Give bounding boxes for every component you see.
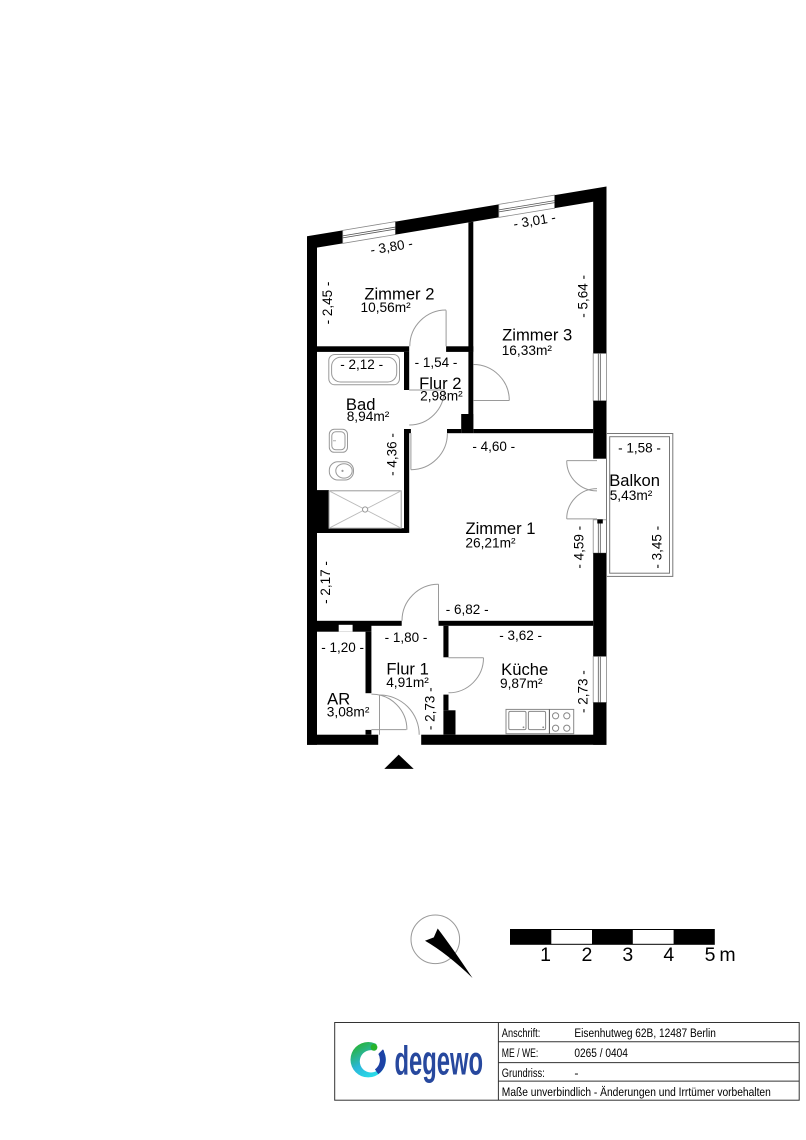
svg-text:- 1,20 -: - 1,20 -: [321, 640, 364, 655]
svg-text:- 4,60 -: - 4,60 -: [472, 439, 515, 454]
svg-text:- 3,45 -: - 3,45 -: [650, 526, 665, 569]
svg-text:9,87m²: 9,87m²: [500, 676, 543, 691]
svg-text:- 3,80 -: - 3,80 -: [369, 236, 414, 258]
svg-text:degewo: degewo: [395, 1037, 484, 1084]
svg-text:- 1,58 -: - 1,58 -: [618, 441, 661, 456]
svg-text:5,43m²: 5,43m²: [610, 488, 653, 503]
svg-text:- 2,73 -: - 2,73 -: [423, 687, 438, 730]
svg-text:-: -: [574, 1066, 578, 1080]
svg-text:10,56m²: 10,56m²: [360, 300, 411, 315]
svg-text:Grundriss:: Grundriss:: [502, 1066, 545, 1080]
svg-text:- 1,80 -: - 1,80 -: [385, 630, 428, 645]
svg-text:- 1,54 -: - 1,54 -: [415, 355, 458, 370]
svg-text:2: 2: [581, 944, 592, 966]
svg-text:2,98m²: 2,98m²: [420, 389, 463, 404]
svg-text:m: m: [719, 944, 735, 966]
svg-text:26,21m²: 26,21m²: [465, 535, 516, 550]
svg-text:1: 1: [540, 944, 551, 966]
svg-text:16,33m²: 16,33m²: [502, 343, 553, 358]
svg-text:0265 / 0404: 0265 / 0404: [574, 1046, 628, 1060]
svg-text:Eisenhutweg 62B, 12487 Berlin: Eisenhutweg 62B, 12487 Berlin: [574, 1026, 716, 1040]
svg-text:- 3,62 -: - 3,62 -: [499, 628, 542, 643]
svg-text:- 4,59 -: - 4,59 -: [572, 526, 587, 569]
svg-text:5: 5: [705, 944, 716, 966]
svg-text:Zimmer 3: Zimmer 3: [502, 326, 572, 345]
svg-text:- 6,82 -: - 6,82 -: [446, 602, 489, 617]
svg-text:3: 3: [622, 944, 633, 966]
svg-text:ME / WE:: ME / WE:: [502, 1046, 539, 1060]
svg-text:Maße unverbindlich - Änderunge: Maße unverbindlich - Änderungen und Irrt…: [502, 1085, 771, 1099]
svg-text:- 2,73 -: - 2,73 -: [576, 670, 591, 713]
svg-text:- 2,17 -: - 2,17 -: [318, 561, 333, 604]
svg-text:- 5,64 -: - 5,64 -: [576, 275, 591, 318]
svg-text:- 4,36 -: - 4,36 -: [384, 433, 399, 476]
svg-text:- 2,45 -: - 2,45 -: [320, 282, 335, 325]
svg-text:Anschrift:: Anschrift:: [502, 1026, 541, 1040]
svg-text:4: 4: [663, 944, 674, 966]
svg-text:3,08m²: 3,08m²: [327, 704, 370, 719]
svg-text:- 2,12 -: - 2,12 -: [340, 357, 383, 372]
svg-text:8,94m²: 8,94m²: [347, 409, 390, 424]
